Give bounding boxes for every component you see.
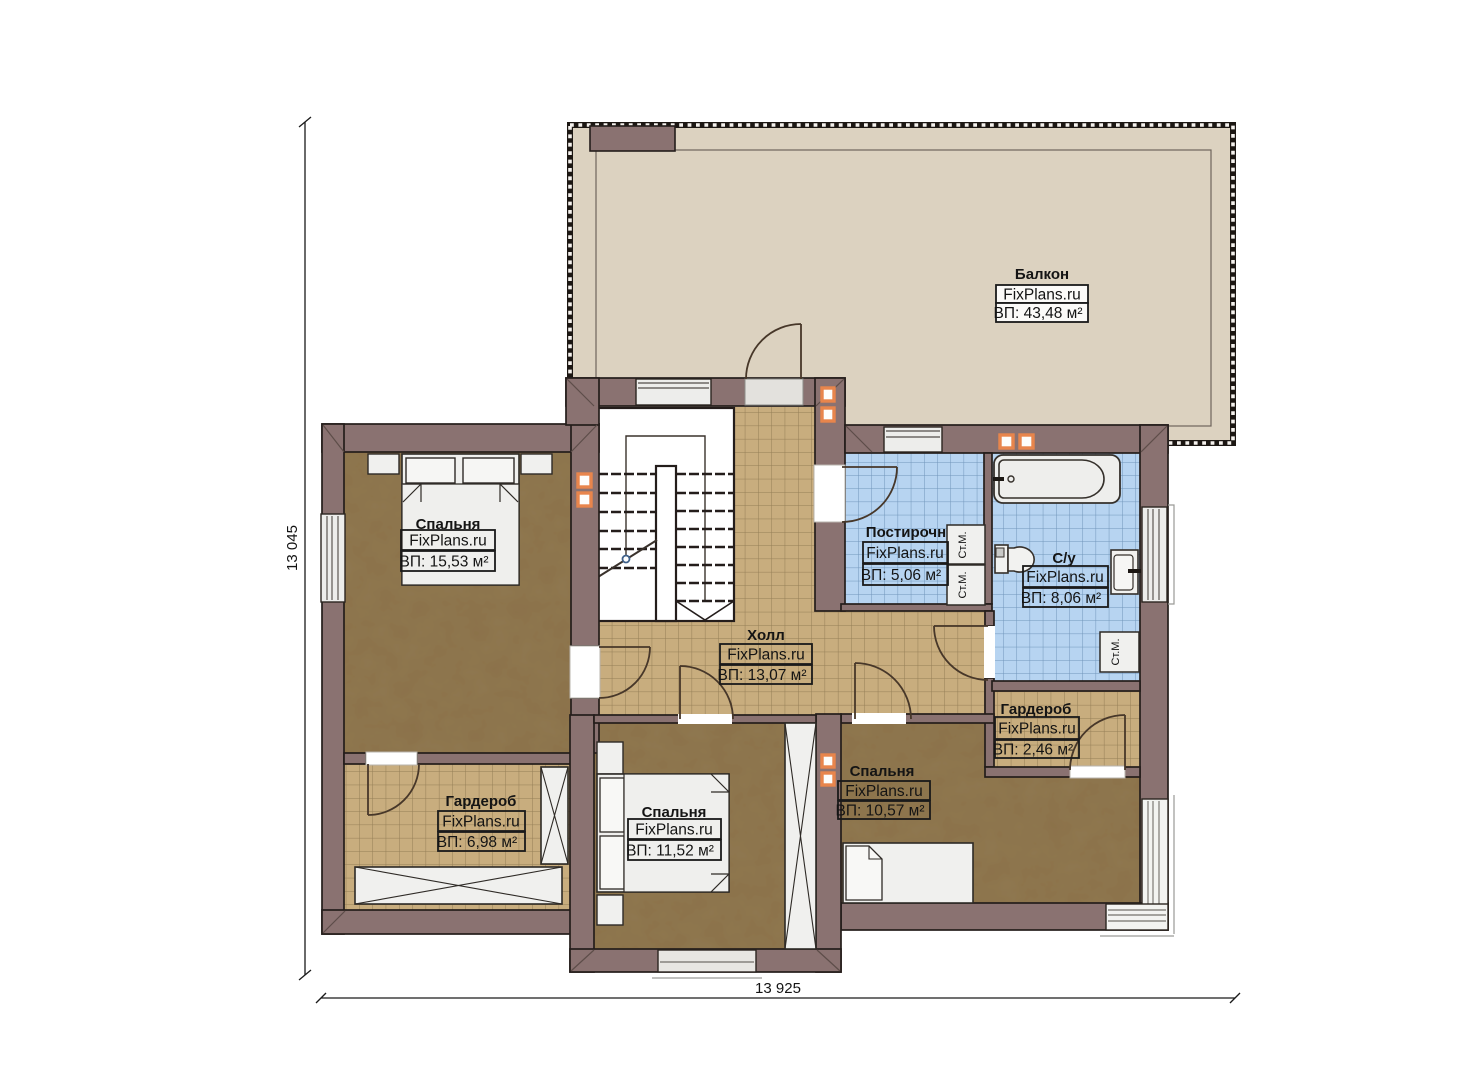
svg-text:ВП: 11,52 м²: ВП: 11,52 м² (626, 843, 714, 860)
svg-text:FixPlans.ru: FixPlans.ru (635, 822, 713, 839)
svg-text:ВП: 5,06 м²: ВП: 5,06 м² (861, 567, 941, 584)
svg-text:FixPlans.ru: FixPlans.ru (409, 533, 487, 550)
svg-text:Спальня: Спальня (850, 763, 915, 780)
svg-text:С/у: С/у (1052, 550, 1076, 567)
svg-text:ВП: 43,48 м²: ВП: 43,48 м² (993, 305, 1082, 322)
svg-text:Балкон: Балкон (1015, 266, 1069, 283)
svg-text:Гардероб: Гардероб (1001, 701, 1072, 718)
svg-text:FixPlans.ru: FixPlans.ru (442, 814, 520, 831)
svg-text:Постирочн: Постирочн (866, 524, 946, 541)
svg-text:13 045: 13 045 (284, 525, 301, 571)
svg-text:Гардероб: Гардероб (446, 793, 517, 810)
svg-text:FixPlans.ru: FixPlans.ru (998, 721, 1076, 738)
svg-text:ВП: 10,57 м²: ВП: 10,57 м² (835, 803, 924, 820)
svg-text:Холл: Холл (747, 627, 785, 644)
svg-text:Ст.М.: Ст.М. (1110, 638, 1122, 665)
svg-text:ВП: 2,46 м²: ВП: 2,46 м² (993, 742, 1073, 759)
svg-text:ВП: 8,06 м²: ВП: 8,06 м² (1021, 590, 1101, 607)
svg-text:FixPlans.ru: FixPlans.ru (1003, 287, 1081, 304)
svg-text:FixPlans.ru: FixPlans.ru (727, 647, 805, 664)
svg-text:ВП: 15,53 м²: ВП: 15,53 м² (399, 554, 488, 571)
svg-text:FixPlans.ru: FixPlans.ru (845, 783, 923, 800)
svg-text:13 925: 13 925 (755, 980, 801, 997)
svg-text:FixPlans.ru: FixPlans.ru (866, 545, 944, 562)
svg-text:Ст.М.: Ст.М. (957, 531, 969, 558)
svg-text:FixPlans.ru: FixPlans.ru (1026, 569, 1104, 586)
svg-text:Ст.М.: Ст.М. (957, 571, 969, 598)
svg-text:ВП: 6,98 м²: ВП: 6,98 м² (437, 834, 517, 851)
svg-text:ВП: 13,07 м²: ВП: 13,07 м² (717, 667, 806, 684)
